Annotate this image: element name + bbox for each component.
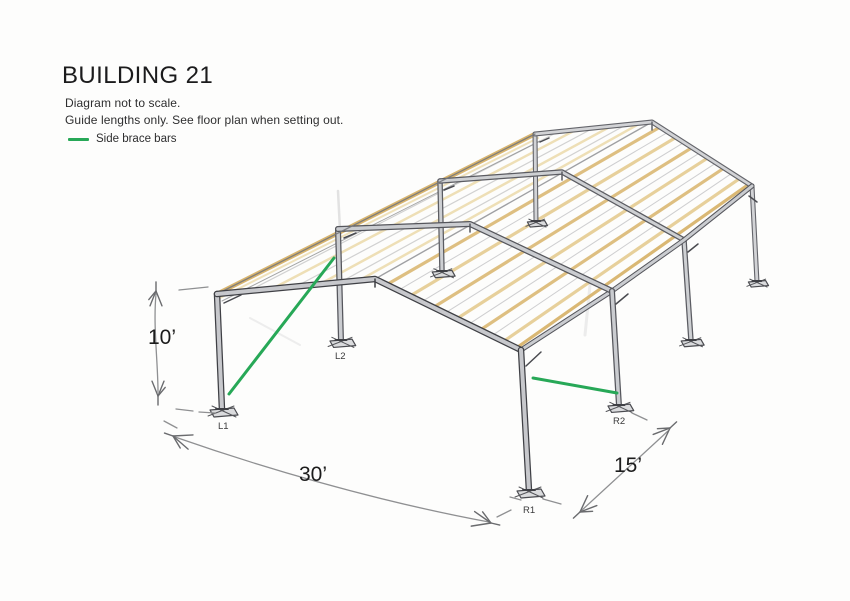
column-label-r1: R1 [523,505,535,516]
building-sketch-svg: 10’30’15’L1L2R1R2 [0,0,850,601]
building-sketch: 10’30’15’L1L2R1R2 [0,0,850,601]
column-label-l2: L2 [335,351,346,362]
scanned-diagram-page: BUILDING 21 Diagram not to scale. Guide … [0,0,850,601]
dimension-annotations [149,282,677,526]
column-label-r2: R2 [613,416,625,427]
dim-height-label: 10’ [148,326,176,349]
dim-width-label: 30’ [299,463,327,486]
column-label-l1: L1 [218,421,229,432]
portal-frame-1 [217,279,529,491]
left-eave-purlin [217,134,540,301]
dim-depth-label: 15’ [614,454,642,477]
